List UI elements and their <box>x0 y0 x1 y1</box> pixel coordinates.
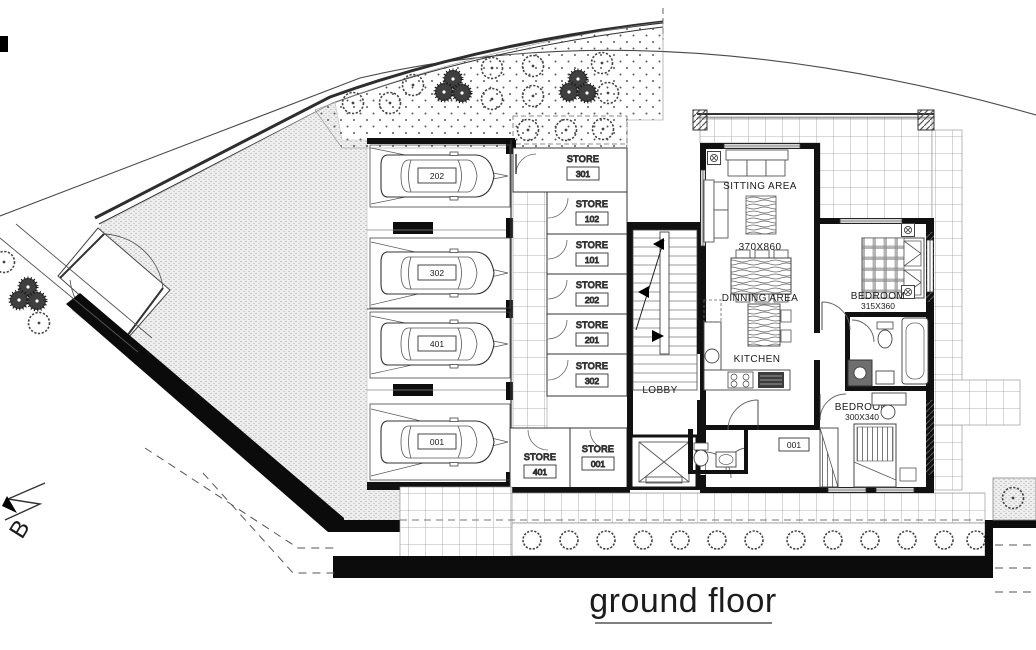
label-bedroom-1-dimensions: 315X360 <box>861 301 895 311</box>
store-101: STORE 101 <box>547 234 627 274</box>
light-icon <box>708 152 721 165</box>
tree-icon <box>0 252 15 273</box>
store-label: STORE <box>576 320 608 330</box>
unit-number: 001 <box>787 440 801 450</box>
staircase <box>633 230 697 390</box>
section-marker: B <box>2 483 45 543</box>
dining-area: DINNING AREA <box>722 250 798 304</box>
floor-plan-drawing: 202 302 401 001 <box>0 0 1036 650</box>
store-corridor <box>513 192 547 428</box>
store-label: STORE <box>582 444 614 454</box>
bathroom <box>848 318 928 386</box>
title-text: ground floor <box>589 582 776 620</box>
bay-number: 001 <box>430 437 444 447</box>
wardrobe <box>820 428 838 487</box>
drawing-title: ground floor <box>589 582 776 623</box>
kitchen-island <box>748 304 780 346</box>
bay-number: 401 <box>430 339 444 349</box>
store-label: STORE <box>576 280 608 290</box>
parking-bay-202: 202 <box>370 145 510 207</box>
label-sitting-area: SITTING AREA <box>723 181 797 192</box>
parking-bay-401: 401 <box>370 312 510 378</box>
toilet <box>694 450 708 466</box>
kitchen: KITCHEN <box>697 300 791 390</box>
nightstand <box>900 468 916 481</box>
unit-number-plate: 001 <box>779 438 809 451</box>
label-kitchen: KITCHEN <box>734 354 781 365</box>
bay-number: 202 <box>430 171 444 181</box>
sitting-area: SITTING AREA 370X860 <box>704 150 797 253</box>
store-number: 101 <box>585 255 599 265</box>
store-301: STORE 301 <box>513 148 627 192</box>
light-icon <box>902 224 915 237</box>
store-number: 102 <box>585 214 599 224</box>
garage-block: 202 302 401 001 <box>367 138 516 490</box>
bedroom-1: BEDROOM 315X360 <box>851 224 924 312</box>
rug <box>746 196 776 234</box>
label-bedroom-2-dimensions: 300X340 <box>845 412 879 422</box>
boundary-tick <box>0 36 8 52</box>
road-edge <box>333 556 985 578</box>
store-label: STORE <box>567 154 599 164</box>
parking-bay-001: 001 <box>370 404 510 480</box>
parking-bay-302: 302 <box>370 238 510 308</box>
store-number: 301 <box>576 169 590 179</box>
label-dining-area: DINNING AREA <box>722 293 798 304</box>
store-401: STORE 401 <box>510 428 570 490</box>
store-number: 201 <box>585 335 599 345</box>
elevator <box>631 436 697 488</box>
desk <box>872 393 906 405</box>
toilet <box>877 322 893 348</box>
driveway-area <box>58 102 406 532</box>
bay-number: 302 <box>430 268 444 278</box>
store-202: STORE 202 <box>547 274 627 314</box>
store-302: STORE 302 <box>547 354 627 396</box>
walkway <box>512 523 985 556</box>
tree-icon <box>29 313 50 334</box>
store-102: STORE 102 <box>547 192 627 234</box>
store-label: STORE <box>524 452 556 462</box>
store-201: STORE 201 <box>547 314 627 354</box>
label-lobby: LOBBY <box>642 385 677 396</box>
bedroom-2: BEDROOM 300X340 <box>820 393 916 487</box>
section-marker-letter: B <box>4 515 35 543</box>
store-label: STORE <box>576 240 608 250</box>
store-label: STORE <box>576 199 608 209</box>
floor-plan-canvas: 202 302 401 001 <box>0 0 1036 650</box>
store-number: 302 <box>585 376 599 386</box>
dining-table <box>731 258 791 294</box>
basin <box>876 371 894 384</box>
store-label: STORE <box>576 361 608 371</box>
store-number: 202 <box>585 295 599 305</box>
bush-icon <box>10 278 46 310</box>
bed-single <box>854 424 896 487</box>
desk-chair <box>881 405 895 419</box>
corner-planter <box>985 478 1036 578</box>
store-number: 001 <box>591 459 605 469</box>
store-001: STORE 001 <box>570 428 627 490</box>
store-number: 401 <box>533 467 547 477</box>
